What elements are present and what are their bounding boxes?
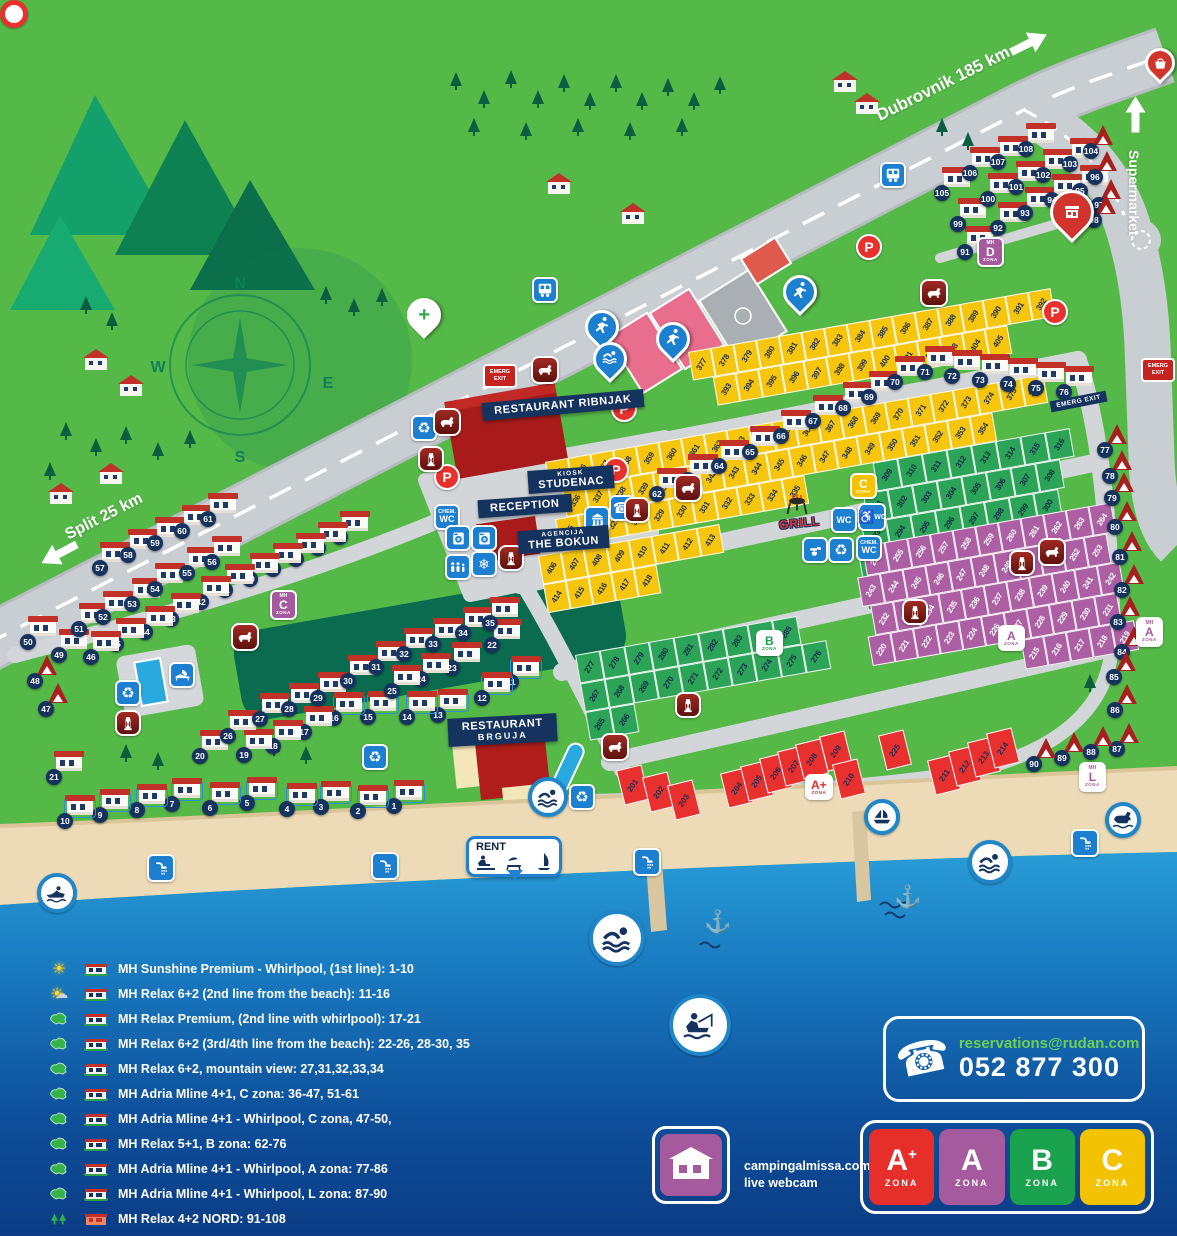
- mobile-home-icon: [323, 786, 349, 801]
- dogswim-icon: [1105, 802, 1141, 838]
- house-number-badge: 62: [649, 486, 665, 502]
- grill-icon-icon: [784, 492, 810, 518]
- a-frame-house-icon: [1117, 501, 1137, 521]
- pitch-354: 354: [970, 413, 998, 446]
- house-number-badge: 27: [252, 711, 268, 727]
- legend-row-text: MH Relax Premium, (2nd line with whirlpo…: [118, 1012, 421, 1026]
- trees-icon: [44, 1212, 74, 1226]
- svg-text:H: H: [509, 556, 514, 563]
- house-number-badge: 14: [399, 709, 415, 725]
- legend-house-icon: [81, 986, 111, 1002]
- house-number-badge: 60: [174, 523, 190, 539]
- mobile-home-icon: [492, 602, 518, 617]
- a-frame-house-icon: [1096, 194, 1116, 214]
- legend-row: MH Relax 4+2 NORD: 91-108: [44, 1206, 470, 1231]
- legend-row: MH Adria Mline 4+1 - Whirlpool, L zona: …: [44, 1181, 470, 1206]
- legend-row: MH Adria Mline 4+1 - Whirlpool, C zona, …: [44, 1106, 470, 1131]
- mobile-home-icon: [1038, 367, 1064, 382]
- zone-color-legend: A+ZONAAZONABZONACZONA: [860, 1120, 1154, 1214]
- mobile-home-icon: [210, 498, 236, 513]
- mobile-home-icon: [56, 756, 82, 771]
- house-number-badge: 101: [1008, 179, 1024, 195]
- legend-house-icon: [81, 1011, 111, 1027]
- zone-badge-c-zona: CZONA: [850, 473, 877, 499]
- house-number-badge: 6: [202, 800, 218, 816]
- house-number-badge: 72: [944, 368, 960, 384]
- rent-stand[interactable]: RENT: [466, 836, 562, 877]
- mobile-home-25: 25: [384, 681, 424, 707]
- mobile-home-4: 4: [279, 799, 319, 825]
- house-number-badge: 53: [124, 596, 140, 612]
- legend-row-text: MH Relax 4+2 NORD: 91-108: [118, 1212, 286, 1226]
- house-number-badge: 61: [200, 511, 216, 527]
- a-frame-house-icon: [1093, 125, 1113, 145]
- house-number-badge: 50: [20, 634, 36, 650]
- banner-restaurant-brguja: RESTAURANTBRGUJA: [447, 713, 557, 747]
- house-number-badge: 10: [57, 813, 73, 829]
- jetski-icon: [37, 873, 77, 913]
- mobile-home-icon: [102, 794, 128, 809]
- swim-icon: [528, 777, 568, 817]
- a-frame-house-icon: [1112, 450, 1132, 470]
- zone-tile-c: CZONA: [1080, 1129, 1145, 1205]
- svg-text:E: E: [323, 375, 334, 392]
- beach-umbrella-icon: [505, 855, 527, 871]
- mobile-home-56: 56: [204, 552, 244, 578]
- island-icon: [44, 1112, 74, 1126]
- house-number-badge: 30: [340, 673, 356, 689]
- mobile-home-icon: [67, 800, 93, 815]
- legend-house-icon: [81, 1036, 111, 1052]
- family-wc-icon: [445, 554, 471, 580]
- house-number-badge: 85: [1106, 669, 1122, 685]
- camping-map: NW SE Dubrovnik 185 km Split 25 km: [0, 0, 1177, 1236]
- mobile-home-icon: [1010, 363, 1036, 378]
- mobile-home-icon: [1066, 371, 1092, 386]
- house-number-badge: 66: [773, 428, 789, 444]
- hydrant-icon: H: [115, 710, 141, 736]
- emergency-exit-sign: EMERGEXIT: [483, 364, 517, 388]
- a-frame-house-icon: [1064, 732, 1084, 752]
- a-frame-house-icon: [1116, 651, 1136, 671]
- mobile-home-6: 6: [202, 798, 242, 824]
- hydrant-icon: H: [675, 692, 701, 718]
- boat-icon: [864, 799, 900, 835]
- mobile-home-2: 2: [350, 801, 390, 827]
- house-number-badge: 81: [1112, 549, 1128, 565]
- webcam-house-icon: [669, 1147, 713, 1183]
- rent-label: RENT: [476, 841, 552, 853]
- mobile-home-15: 15: [360, 707, 400, 733]
- webcam-button[interactable]: [652, 1126, 730, 1204]
- tap-icon: [802, 537, 828, 563]
- mobile-home-48: 48: [27, 671, 67, 697]
- mobile-home-61: 61: [200, 509, 240, 535]
- emergency-exit-sign: EMERGEXIT: [1141, 358, 1175, 382]
- house-number-badge: 103: [1062, 156, 1078, 172]
- shower-icon: [1071, 829, 1099, 857]
- legend-row-text: MH Adria Mline 4+1 - Whirlpool, L zona: …: [118, 1187, 387, 1201]
- legend-row: MH Adria Mline 4+1 - Whirlpool, A zona: …: [44, 1156, 470, 1181]
- mobile-home-1: 1: [386, 796, 426, 822]
- house-number-badge: 25: [384, 683, 400, 699]
- fishing-icon: [669, 994, 731, 1056]
- phone-icon: ☎: [892, 1032, 955, 1086]
- dog-area-icon: [601, 733, 629, 761]
- mobile-home-7: 7: [164, 794, 204, 820]
- house-number-badge: 33: [425, 636, 441, 652]
- house-number-badge: 29: [310, 690, 326, 706]
- house-number-badge: 31: [368, 659, 384, 675]
- legend-row-text: MH Adria Mline 4+1, C zona: 36-47, 51-61: [118, 1087, 359, 1101]
- house-number-badge: 35: [482, 615, 498, 631]
- house-number-badge: 99: [950, 216, 966, 232]
- island-icon: [44, 1037, 74, 1051]
- legend-row: ☀☁MH Relax 6+2 (2nd line from the beach)…: [44, 981, 470, 1006]
- legend-row: MH Relax 6+2, mountain view: 27,31,32,33…: [44, 1056, 470, 1081]
- reservations-phone: 052 877 300: [959, 1052, 1140, 1083]
- house-number-badge: 108: [1018, 141, 1034, 157]
- pitch-418: 418: [634, 565, 662, 598]
- a-frame-house-icon: [1120, 596, 1140, 616]
- dog-area-icon: [674, 474, 702, 502]
- legend-house-icon: [81, 1061, 111, 1077]
- legend-row: ☀MH Sunshine Premium - Whirlpool, (1st l…: [44, 956, 470, 981]
- pitch-413: 413: [697, 524, 725, 557]
- legend-house-icon: [81, 1111, 111, 1127]
- house-number-badge: 80: [1107, 519, 1123, 535]
- house-number-badge: 51: [71, 621, 87, 637]
- wc-wheelchair-icon: ♿WC: [858, 503, 886, 531]
- legend-house-icon: [81, 1211, 111, 1227]
- mobile-home-104: 104: [1083, 141, 1123, 167]
- svg-text:H: H: [1020, 561, 1025, 568]
- house-number-badge: 90: [1026, 756, 1042, 772]
- recycle-icon: ♻: [828, 537, 854, 563]
- supermarket-arrow-icon: [1124, 95, 1153, 135]
- zone-tile-a: AZONA: [939, 1129, 1004, 1205]
- legend-house-icon: [81, 961, 111, 977]
- map-legend: ☀MH Sunshine Premium - Whirlpool, (1st l…: [44, 956, 470, 1231]
- house-number-badge: 21: [46, 769, 62, 785]
- mobile-home-5: 5: [239, 793, 279, 819]
- house-number-badge: 54: [147, 581, 163, 597]
- pitch-266: 266: [610, 703, 640, 736]
- pitch-276: 276: [802, 640, 832, 673]
- recycle-icon: ♻: [569, 784, 595, 810]
- house-number-badge: 52: [95, 609, 111, 625]
- zone-badge-mh-c-zona: MHCZONA: [270, 590, 297, 620]
- house-number-badge: 57: [92, 560, 108, 576]
- zone-badge-mh-a-zona: MHAZONA: [1136, 617, 1163, 647]
- pitch-316: 316: [1045, 428, 1075, 461]
- shower-icon: [147, 854, 175, 882]
- swim-icon: [589, 910, 645, 966]
- legend-row: MH Relax 5+1, B zona: 62-76: [44, 1131, 470, 1156]
- dog-area-icon: [1038, 538, 1066, 566]
- svg-text:H: H: [686, 703, 691, 710]
- pitch-308: 308: [1035, 459, 1065, 492]
- mobile-home-8: 8: [129, 800, 169, 826]
- mobile-home-icon: [249, 782, 275, 797]
- house-number-badge: 74: [1000, 376, 1016, 392]
- hydrant-icon: H: [624, 497, 650, 523]
- mobile-home-3: 3: [313, 797, 353, 823]
- house-number-badge: 65: [742, 444, 758, 460]
- mobile-home-icon: [1028, 128, 1054, 143]
- pedalo-icon: [476, 855, 496, 871]
- a-frame-house-icon: [1093, 726, 1113, 746]
- house-number-badge: 26: [220, 728, 236, 744]
- house-number-badge: 75: [1028, 380, 1044, 396]
- recycle-icon: ♻: [115, 680, 141, 706]
- hydrant-icon: H: [1009, 550, 1035, 576]
- mobile-home-icon: [927, 351, 953, 366]
- house-number-badge: 77: [1097, 442, 1113, 458]
- mobile-home-icon: [139, 789, 165, 804]
- house-number-badge: 67: [805, 413, 821, 429]
- mobile-home-47: 47: [38, 699, 78, 725]
- mobile-home-9: 9: [92, 805, 132, 831]
- mobile-home-icon: [174, 783, 200, 798]
- house-number-badge: 12: [474, 690, 490, 706]
- mobile-home-icon: [954, 355, 980, 370]
- island-icon: [44, 1137, 74, 1151]
- mobile-home-icon: [214, 541, 240, 556]
- legend-house-icon: [81, 1161, 111, 1177]
- a-frame-house-icon: [1122, 531, 1142, 551]
- house-number-badge: 73: [972, 372, 988, 388]
- shower-icon: [633, 848, 661, 876]
- svg-text:S: S: [235, 449, 246, 466]
- a-frame-house-icon: [1107, 424, 1127, 444]
- bus-icon: [880, 162, 906, 188]
- legend-row: MH Relax 6+2 (3rd/4th line from the beac…: [44, 1031, 470, 1056]
- shower-icon: [371, 852, 399, 880]
- zone-badge-mh-d-zona: MHDZONA: [977, 237, 1004, 267]
- mobile-home-icon: [360, 790, 386, 805]
- house-number-badge: 28: [281, 701, 297, 717]
- mobile-home-icon: [252, 558, 278, 573]
- mobile-home-icon: [513, 661, 539, 676]
- mobile-home-90: 90: [1026, 754, 1066, 780]
- bus-icon: [532, 277, 558, 303]
- legend-house-icon: [81, 1136, 111, 1152]
- mobile-home-21: 21: [46, 767, 86, 793]
- house-number-badge: 34: [455, 625, 471, 641]
- contact-box: ☎ reservations@rudan.com 052 877 300: [883, 1016, 1145, 1102]
- sun-icon: ☀: [44, 959, 74, 979]
- swim-icon: [968, 840, 1012, 884]
- mobile-home-35: 35: [482, 613, 522, 639]
- hydrant-icon: H: [902, 599, 928, 625]
- house-number-badge: 64: [711, 458, 727, 474]
- zone-badge-mh-l-zona: MHLZONA: [1079, 762, 1106, 792]
- house-number-badge: 55: [179, 565, 195, 581]
- dog-area-icon: [920, 279, 948, 307]
- legend-row-text: MH Sunshine Premium - Whirlpool, (1st li…: [118, 962, 414, 976]
- a-frame-house-icon: [1119, 723, 1139, 743]
- zone-badge-a+-zona: A+ZONA: [805, 774, 833, 800]
- parking-icon: P: [1042, 299, 1068, 325]
- house-number-badge: 48: [27, 673, 43, 689]
- reservations-email-link[interactable]: reservations@rudan.com: [959, 1035, 1140, 1052]
- mobile-home-10: 10: [57, 811, 97, 837]
- house-number-badge: 86: [1107, 702, 1123, 718]
- legend-row-text: MH Adria Mline 4+1 - Whirlpool, C zona, …: [118, 1112, 392, 1126]
- legend-row: MH Relax Premium, (2nd line with whirlpo…: [44, 1006, 470, 1031]
- house-number-badge: 58: [120, 547, 136, 563]
- a-frame-house-icon: [1117, 684, 1137, 704]
- island-icon: [44, 1012, 74, 1026]
- house-number-badge: 106: [962, 165, 978, 181]
- hydrant-icon: H: [418, 446, 444, 472]
- legend-row-text: MH Relax 6+2 (3rd/4th line from the beac…: [118, 1037, 470, 1051]
- mobile-home-14: 14: [399, 707, 439, 733]
- laundry-icon: [471, 525, 497, 551]
- legend-row-text: MH Relax 6+2, mountain view: 27,31,32,33…: [118, 1062, 384, 1076]
- house-number-badge: 59: [147, 535, 163, 551]
- house-number-badge: 107: [990, 154, 1006, 170]
- house-number-badge: 69: [861, 389, 877, 405]
- legend-row-text: MH Relax 5+1, B zona: 62-76: [118, 1137, 286, 1151]
- mobile-home-icon: [440, 694, 466, 709]
- mobile-home-12: 12: [474, 688, 514, 714]
- island-icon: [44, 1187, 74, 1201]
- parking-icon: P: [856, 234, 882, 260]
- zone-badge-b-zona: BZONA: [756, 630, 783, 656]
- mobile-home-icon: [30, 621, 56, 636]
- legend-house-icon: [81, 1086, 111, 1102]
- legend-row-text: MH Adria Mline 4+1 - Whirlpool, A zona: …: [118, 1162, 388, 1176]
- svg-text:N: N: [234, 275, 246, 292]
- lounger-icon: [169, 662, 195, 688]
- mobile-home-108: 108: [1018, 139, 1058, 165]
- freezer-icon: ❄: [471, 551, 497, 577]
- house-number-badge: 32: [396, 646, 412, 662]
- webcam-subtitle: live webcam: [744, 1176, 818, 1190]
- zone-tile-b: BZONA: [1010, 1129, 1075, 1205]
- house-number-badge: 102: [1035, 167, 1051, 183]
- house-number-badge: 68: [835, 400, 851, 416]
- house-number-badge: 104: [1083, 143, 1099, 159]
- dog-area-icon: [433, 408, 461, 436]
- svg-text:H: H: [635, 508, 640, 515]
- zone-tile-a-plus: A+ZONA: [869, 1129, 934, 1205]
- dog-area-icon: [231, 623, 259, 651]
- webcam-caption: campingalmissa.com live webcam: [744, 1158, 870, 1192]
- house-number-badge: 92: [990, 220, 1006, 236]
- anchor-icon: ⚓: [706, 910, 730, 934]
- svg-text:H: H: [913, 610, 918, 617]
- wc-icon: WC: [831, 507, 857, 533]
- legend-row-text: MH Relax 6+2 (2nd line from the beach): …: [118, 987, 390, 1001]
- suncloud-icon: ☀☁: [44, 984, 74, 1004]
- mobile-home-icon: [484, 677, 510, 692]
- svg-text:H: H: [429, 457, 434, 464]
- svg-text:W: W: [150, 359, 166, 376]
- house-number-badge: 4: [279, 801, 295, 817]
- house-number-badge: 20: [192, 748, 208, 764]
- recycle-icon: ♻: [362, 744, 388, 770]
- house-number-badge: 100: [980, 191, 996, 207]
- dog-area-icon: [531, 356, 559, 384]
- house-number-badge: 56: [204, 554, 220, 570]
- island-icon: [44, 1162, 74, 1176]
- a-frame-house-icon: [1124, 564, 1144, 584]
- house-number-badge: 70: [887, 374, 903, 390]
- island-icon: [44, 1062, 74, 1076]
- mobile-home-icon: [212, 787, 238, 802]
- mobile-home-icon: [396, 785, 422, 800]
- island-icon: [44, 1087, 74, 1101]
- road-label-supermarket: Supermarket: [1126, 150, 1142, 300]
- legend-house-icon: [81, 1186, 111, 1202]
- a-frame-house-icon: [1114, 472, 1134, 492]
- wc-chem-icon: CHEM.WC: [856, 535, 882, 561]
- mobile-home-icon: [982, 359, 1008, 374]
- house-number-badge: 47: [38, 701, 54, 717]
- laundry-icon: [445, 525, 471, 551]
- pitch-405: 405: [985, 325, 1013, 358]
- svg-text:H: H: [126, 721, 131, 728]
- legend-row: MH Adria Mline 4+1, C zona: 36-47, 51-61: [44, 1081, 470, 1106]
- zone-badge-a-zona: AZONA: [998, 625, 1025, 651]
- house-number-badge: 105: [934, 185, 950, 201]
- anchor-icon: ⚓: [896, 885, 920, 909]
- mobile-home-icon: [289, 788, 315, 803]
- mobile-home-50: 50: [20, 632, 60, 658]
- webcam-url[interactable]: campingalmissa.com: [744, 1159, 870, 1173]
- house-number-badge: 91: [957, 244, 973, 260]
- windsurf-icon: [536, 853, 552, 871]
- a-frame-house-icon: [1036, 738, 1056, 758]
- house-number-badge: 71: [917, 364, 933, 380]
